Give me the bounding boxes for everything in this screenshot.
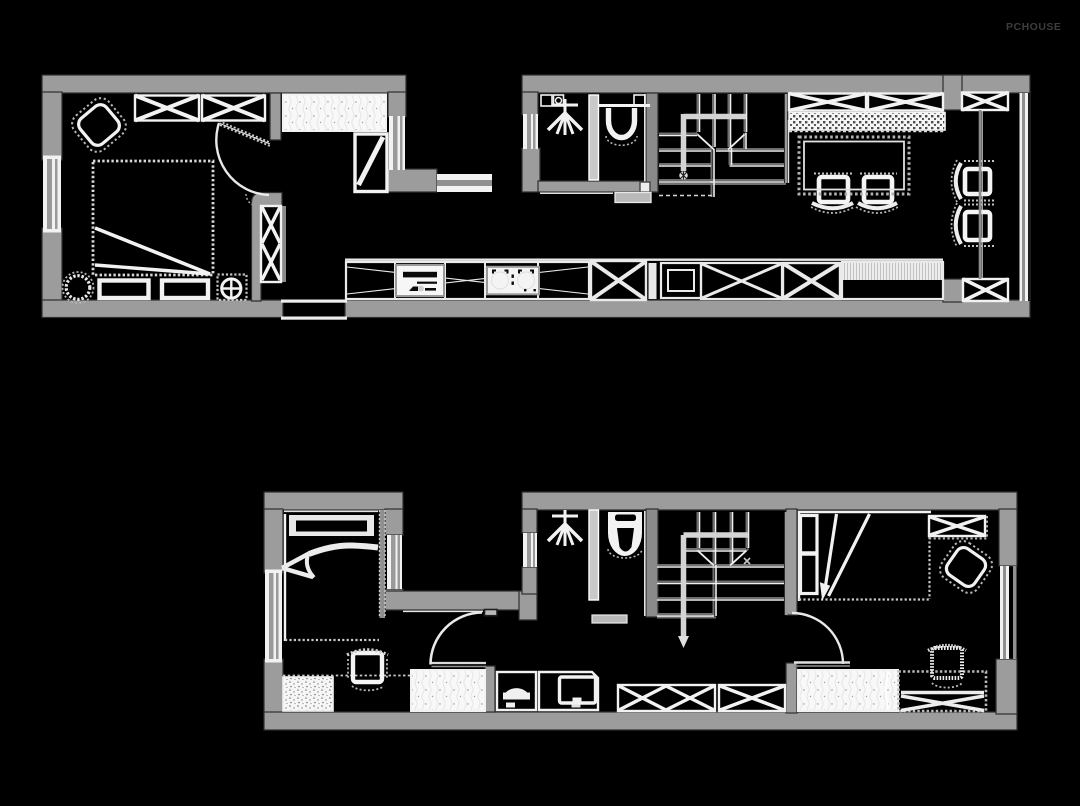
svg-text:PCHOUSE: PCHOUSE — [1006, 21, 1061, 33]
